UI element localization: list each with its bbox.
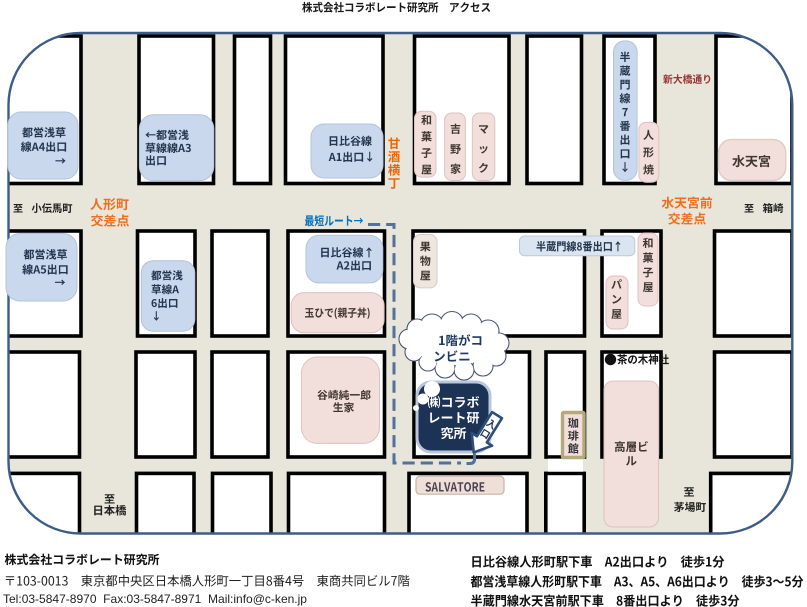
svg-text:Tel:03-5847-8970 Fax:03-5847-: Tel:03-5847-8970 Fax:03-5847-8971 Mail:i… [3,592,307,606]
